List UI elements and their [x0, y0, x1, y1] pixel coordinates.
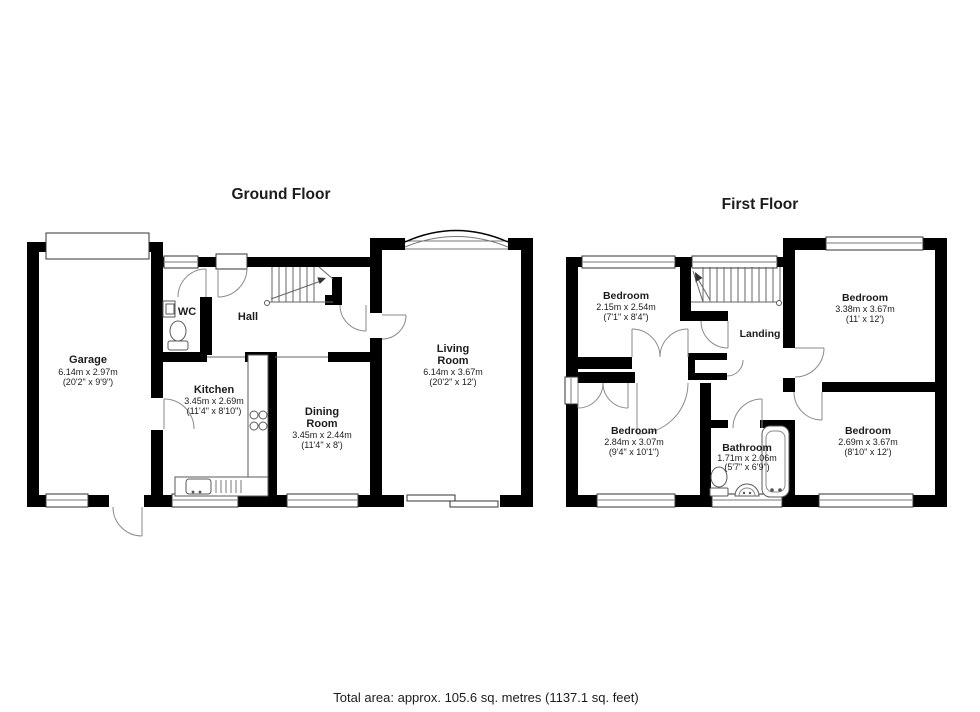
- bedroom-label: Bedroom 2.69m x 3.67m (8'10" x 12'): [838, 425, 898, 457]
- window: [597, 494, 675, 507]
- sink-icon: [163, 301, 175, 317]
- first-floor-title: First Floor: [722, 196, 799, 213]
- wall-segment: [332, 277, 342, 305]
- wall-segment: [680, 311, 728, 321]
- window: [287, 494, 358, 507]
- room-name: Dining: [305, 406, 339, 418]
- bedroom-door: [795, 348, 824, 377]
- landing-door: [701, 321, 728, 348]
- floorplan-drawing: Ground Floor First Floor: [0, 0, 980, 712]
- wall-segment: [370, 238, 382, 313]
- ground-floor-plan: Garage 6.14m x 2.97m (20'2" x 9'9") Kitc…: [27, 231, 533, 537]
- window: [692, 256, 777, 268]
- window: [164, 256, 198, 268]
- toilet-icon: [168, 321, 188, 350]
- room-name: Bedroom: [842, 292, 888, 304]
- wardrobe-double-doors: [578, 383, 628, 408]
- patio-sliding-door: [404, 493, 500, 509]
- room-dims-imperial: (20'2" x 9'9"): [63, 377, 113, 387]
- first-floor-stairs: [691, 267, 782, 306]
- room-dims-metric: 6.14m x 3.67m: [423, 367, 483, 377]
- cupboard-door: [727, 360, 743, 376]
- window: [582, 256, 675, 268]
- room-dims-imperial: (9'4" x 10'1"): [609, 447, 659, 457]
- wall-segment: [27, 242, 39, 507]
- window: [819, 494, 913, 507]
- ground-floor-stairs: [265, 267, 334, 306]
- wall-segment: [822, 382, 947, 392]
- room-name: Garage: [69, 354, 107, 366]
- wall-segment: [700, 420, 728, 428]
- wall-segment: [935, 238, 947, 507]
- room-dims-metric: 3.45m x 2.44m: [292, 430, 352, 440]
- wall-segment: [566, 357, 632, 369]
- room-dims-imperial: (11'4" x 8'): [301, 440, 342, 450]
- room-dims-imperial: (7'1" x 8'4"): [603, 312, 648, 322]
- bathroom-door: [733, 399, 762, 428]
- wall-segment: [328, 352, 372, 362]
- window: [46, 494, 88, 507]
- total-area-caption: Total area: approx. 105.6 sq. metres (11…: [333, 690, 638, 705]
- stairs-direction-arrow: [698, 279, 710, 300]
- bedroom-label: Bedroom 3.38m x 3.67m (11' x 12'): [835, 292, 895, 324]
- bay-window: [405, 231, 508, 252]
- bathroom-label: Bathroom 1.71m x 2.06m (5'7" x 6'9"): [717, 442, 777, 472]
- landing-label: Landing: [740, 328, 781, 340]
- room-dims-imperial: (20'2" x 12'): [429, 377, 476, 387]
- dining-room-label: Dining Room 3.45m x 2.44m (11'4" x 8'): [292, 406, 352, 450]
- bedroom-double-doors: [632, 329, 688, 357]
- wall-segment: [163, 352, 207, 362]
- wall-segment: [783, 378, 795, 392]
- window: [826, 237, 923, 250]
- wall-segment: [521, 238, 533, 507]
- living-room-door: [382, 315, 406, 339]
- room-dims-metric: 3.45m x 2.69m: [184, 396, 244, 406]
- room-dims-metric: 2.69m x 3.67m: [838, 437, 898, 447]
- bedroom-label: Bedroom 2.84m x 3.07m (9'4" x 10'1"): [604, 425, 664, 457]
- wall-segment: [577, 372, 635, 383]
- wall-segment: [688, 353, 695, 380]
- wc-label: WC: [178, 306, 196, 318]
- living-room-label: Living Room 6.14m x 3.67m (20'2" x 12'): [423, 343, 483, 387]
- garage-door: [46, 233, 149, 259]
- bedroom-label: Bedroom 2.15m x 2.54m (7'1" x 8'4"): [596, 290, 656, 322]
- room-name: Living: [437, 343, 469, 355]
- hall-inner-door: [340, 305, 366, 331]
- back-door: [109, 494, 144, 536]
- room-dims-metric: 6.14m x 2.97m: [58, 367, 118, 377]
- wall-segment: [700, 383, 711, 507]
- room-dims-metric: 2.15m x 2.54m: [596, 302, 656, 312]
- room-name: Room: [306, 418, 337, 430]
- ground-floor-title: Ground Floor: [231, 186, 330, 203]
- bedroom-door: [794, 392, 822, 420]
- wall-segment: [200, 297, 212, 355]
- garage-label: Garage 6.14m x 2.97m (20'2" x 9'9"): [58, 354, 118, 387]
- window: [565, 377, 578, 404]
- room-name: Bedroom: [611, 425, 657, 437]
- wall-segment: [151, 242, 163, 398]
- room-dims-imperial: (5'7" x 6'9"): [724, 462, 769, 472]
- wall-segment: [783, 250, 795, 348]
- front-door: [216, 254, 247, 297]
- room-dims-imperial: (11'4" x 8'10"): [187, 406, 242, 416]
- wc-door: [178, 269, 206, 297]
- floorplan-page: Ground Floor First Floor: [0, 0, 980, 712]
- room-dims-metric: 3.38m x 3.67m: [835, 304, 895, 314]
- room-dims-metric: 2.84m x 3.07m: [604, 437, 664, 447]
- wall-segment: [370, 338, 382, 507]
- room-name: Bedroom: [845, 425, 891, 437]
- room-name: Room: [437, 355, 468, 367]
- room-name: Bedroom: [603, 290, 649, 302]
- room-name: Kitchen: [194, 384, 235, 396]
- room-dims-imperial: (8'10" x 12'): [844, 447, 891, 457]
- hall-label: Hall: [238, 311, 258, 323]
- kitchen-label: Kitchen 3.45m x 2.69m (11'4" x 8'10"): [184, 384, 244, 416]
- sink-icon: [735, 484, 759, 496]
- room-dims-imperial: (11' x 12'): [846, 314, 884, 324]
- first-floor-plan: Bedroom 2.15m x 2.54m (7'1" x 8'4") Bedr…: [565, 237, 947, 507]
